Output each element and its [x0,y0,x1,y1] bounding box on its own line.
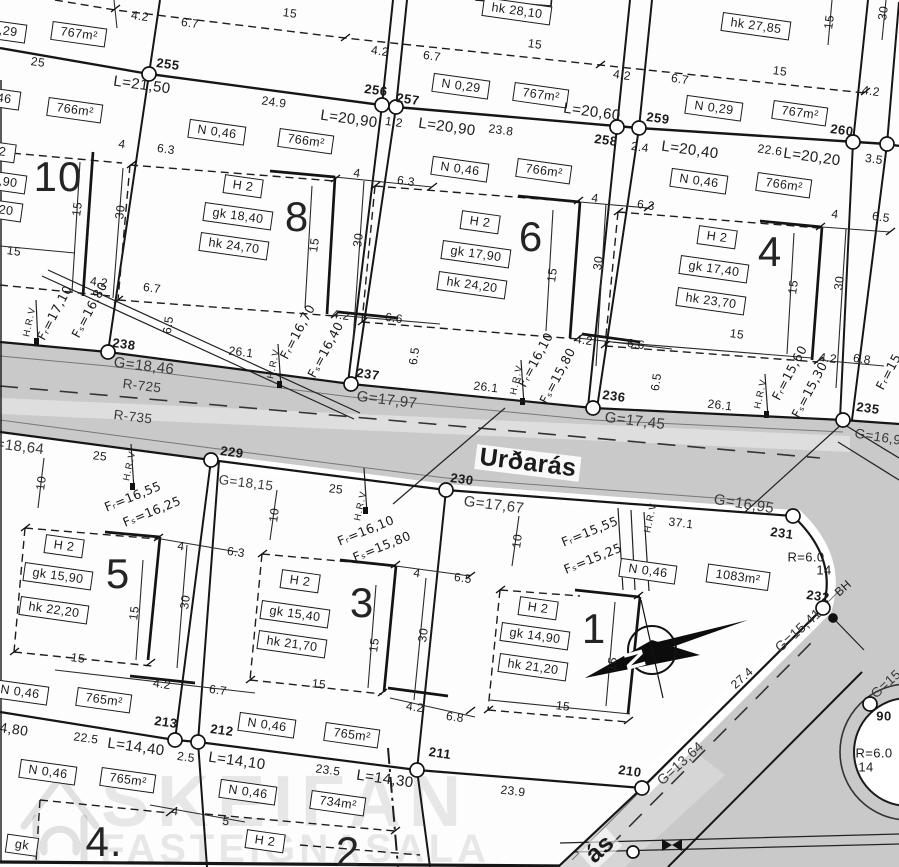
plot-number-1: 1 [582,608,606,650]
map-label: 255 [156,56,181,72]
map-label: 210 [618,763,643,779]
map-label: 10 [510,533,524,549]
map-label: L=20,40 [661,139,720,162]
map-label: 22.6 [757,142,783,157]
map-label: 256 [364,82,389,98]
map-label-box: H 2 [44,534,85,558]
map-label: 6.5 [649,372,663,391]
map-label: 260 [830,122,855,138]
map-label: G=17,67 [463,494,525,516]
map-label-box: 766m² [46,97,103,123]
map-label: Fₛ=15,25 [562,542,624,577]
map-label: G=18,64 [0,435,45,457]
map-label: 6.5 [453,571,472,585]
map-label-box: N 0,46 [669,168,728,194]
map-label-box: N 0,46 [18,759,77,785]
map-label: 2.4 [630,140,649,154]
map-label: 230 [450,471,475,487]
map-label: 15 [545,267,559,283]
map-label: 15 [527,37,543,51]
map-label: 6.6 [384,311,403,325]
map-label: 257 [396,91,421,107]
map-label-box: H 2 [518,596,559,620]
map-label: 6.7 [422,49,441,63]
map-label: 30 [832,275,846,291]
map-label: 14 [858,761,873,774]
map-label: 4.2 [405,700,424,714]
map-label: 4 [413,567,422,580]
map-label: R-725 [122,377,162,395]
map-label-box: 766m² [755,172,812,198]
map-label: 15 [282,6,298,20]
plot-number-4: 4 [758,231,782,273]
plot-number-8: 8 [285,196,309,238]
map-label-box: hk 21,70 [256,630,327,658]
map-label: 4 [591,192,600,205]
map-label: G=17,97 [356,389,418,411]
map-label-box: 1083m² [706,563,771,590]
map-label: 30 [876,5,890,21]
map-label: 26.1 [228,345,254,360]
map-label: 4.2 [152,677,171,691]
map-label-box: N 0,46 [0,84,22,110]
north-letter: N [618,647,649,673]
plot-number-3: 3 [350,582,374,624]
map-label: 236 [602,388,627,404]
map-label: 3.5 [864,152,883,166]
map-label: 25 [30,55,46,69]
plot-number-4b: 4. [85,821,122,863]
map-label: 4.2 [574,333,593,347]
map-label: 6.7 [142,281,161,295]
map-label: 6.3 [226,545,245,559]
map-label-box: N 0,29 [684,95,743,121]
map-label: 22.5 [73,730,99,745]
map-label: G=15 [868,667,899,700]
map-label: 4.2 [89,275,108,289]
map-label: 213 [154,714,179,730]
map-label: 4.2 [130,9,149,23]
map-label: G=13,64 [654,739,706,787]
map-label: G=17,45 [604,410,666,432]
map-label: 4.2 [818,351,837,365]
map-label-box: gk 14,90 [499,622,570,650]
plot-number-6: 6 [519,216,543,258]
map-label: G=18,15 [218,473,274,493]
map-label: 30 [113,204,127,220]
street-name-secondary: ás [578,827,622,867]
map-label: H.R.V [353,490,369,522]
map-label: 15 [311,677,327,691]
map-label: 1.2 [384,115,403,129]
map-label-box: 765m² [323,722,380,748]
map-label-box: 765m² [75,687,132,713]
map-label-box: hk 28,10 [481,0,552,25]
map-label: 232 [806,588,831,604]
map-label-box: H 2 [460,210,501,234]
map-label-box: N 0,46 [237,712,296,738]
map-label-box: gk 18,90 [0,166,28,194]
map-label-box: 766m² [277,128,334,154]
map-label: 2.5 [176,750,195,764]
map-label: 15 [772,64,788,78]
map-label: 15 [70,651,86,665]
map-label: Fₛ=16,40 [306,320,346,380]
map-label: 26.1 [473,380,499,395]
map-label: 6.3 [396,174,415,188]
map-label: 4 [831,208,840,221]
map-label: G=16,9 [854,427,899,448]
map-label-box: hk 24,20 [436,271,507,299]
map-label-box: 767m² [50,21,107,47]
map-label: 23.8 [488,122,514,137]
map-label: L=14,40 [107,736,166,759]
plot-number-5: 5 [106,553,130,595]
map-label: H.R.V [753,378,769,410]
map-label: L=21,50 [113,74,172,97]
map-label: 6.5 [871,210,890,224]
map-label: G=15,41 [772,606,824,654]
map-label: 6.3 [156,142,175,156]
map-label: 10 [34,475,48,491]
map-label: 10 [267,507,281,523]
map-label-box: H 2 [0,139,16,163]
map-label: 27.4 [729,665,756,691]
map-label: 6.8 [445,710,464,724]
map-label-box: hk 23,70 [675,287,746,315]
map-label: 15 [70,201,84,217]
map-label: H.R.V [266,348,282,380]
map-label: L=20,60 [563,101,622,124]
map-label: 26.1 [707,398,733,413]
map-label: R-735 [113,408,153,426]
map-label: 23.9 [500,784,526,799]
map-label: 15 [367,637,381,653]
map-label-box: N 0,29 [431,73,490,99]
map-label: 4.2 [370,44,389,58]
map-label: 229 [220,444,245,460]
map-label-box: N 0,46 [0,679,50,705]
map-label: 30 [178,594,192,610]
map-label: 15 [307,237,321,253]
map-label: Fᵣ=16,70 [278,303,317,362]
map-label-box: H 2 [223,174,264,198]
map-label: 4.2 [331,308,350,322]
map-label: 6.3 [636,198,655,212]
street-name-urdaras: Urðarás [474,444,582,482]
map-label: 15 [729,327,745,341]
map-label: 258 [594,132,619,148]
map-label: L=20,20 [783,146,842,169]
map-label-box: 767m² [771,100,828,126]
map-label: H.R.V [122,450,138,482]
map-label-box: gk 15,40 [259,600,330,628]
map-label: 259 [646,110,671,126]
map-label: 4.2 [861,84,880,98]
map-label-box: gk 17,90 [440,240,511,268]
map-label-box: H 2 [697,225,738,249]
map-label: 6.6 [626,337,645,351]
map-label-box: hk 21,20 [497,653,568,681]
map-label: 30 [416,627,430,643]
map-label: 212 [210,722,235,738]
map-label: 4 [353,167,362,180]
map-label: 6.7 [180,16,199,30]
map-label: 4,80 [0,720,29,738]
map-label: 30 [351,232,365,248]
map-label: 238 [112,336,137,352]
map-label: 6.7 [208,683,227,697]
map-label: 30 [591,255,605,271]
map-label: 37.1 [668,516,694,531]
map-label: Fᵣ=15, [874,348,899,392]
plot-number-10: 10 [34,156,83,198]
map-label-box: N 0,46 [187,119,246,145]
map-label-box: hk 24,70 [198,232,269,260]
watermark-line2: FASTEIGNASALA [100,829,490,867]
map-label: 4 [118,138,127,151]
map-label: 15 [822,14,836,30]
map-label-box: gk 15,90 [22,562,93,590]
map-label-box: hk 27,85 [720,12,791,40]
map-label-box: gk 18,40 [202,202,273,230]
label-layer: Urðarás ás SKEIFAN FASTEIGNASALA N 767m²… [0,0,899,867]
map-label: 15 [127,605,141,621]
map-label-box: hk 22,20 [18,596,89,624]
map-label: 235 [856,400,881,416]
map-label: 4.2 [612,68,631,82]
map-label: 6.5 [161,315,175,334]
map-label: 14 [816,564,831,577]
map-label: L=20,90 [418,116,477,139]
map-label-box: gk 17,40 [678,255,749,283]
map-label: 24.9 [261,94,287,109]
map-label: 4 [177,540,186,553]
map-label-box: 766m² [515,158,572,184]
map-label: 6.8 [852,352,871,366]
map-label: H.R.V [643,502,659,534]
map-label: 15 [605,656,619,672]
map-label-box: H 2 [280,569,321,593]
map-label-box: 767m² [512,82,569,108]
map-label: 211 [428,745,452,761]
map-label: L=20,90 [320,108,379,131]
map-label: 15 [6,244,22,258]
site-plan: Urðarás ás SKEIFAN FASTEIGNASALA N 767m²… [0,0,899,867]
map-label: 15 [555,699,571,713]
map-label: 23.5 [315,762,341,777]
plot-number-2: 2 [336,831,360,867]
map-label: 15 [786,279,800,295]
map-label: 25 [92,449,108,463]
map-label: 90 [876,710,891,723]
map-label: 25 [328,482,344,496]
map-label: G=16,95 [713,492,775,516]
map-label: G=18,46 [113,355,175,377]
map-label-box: hk 25,20 [0,194,24,222]
map-label: 6.5 [407,346,421,365]
map-label-box: N 0,46 [430,156,489,182]
map-label: 6.7 [670,72,689,86]
map-label-box: N 0,29 [0,17,28,43]
map-label: 237 [356,366,381,382]
map-label-box: N 0,46 [618,558,677,584]
map-label-box: gk [5,834,39,857]
map-label: R=6.0 [855,747,892,760]
map-label: 231 [770,525,795,541]
map-label: BH [832,578,853,599]
